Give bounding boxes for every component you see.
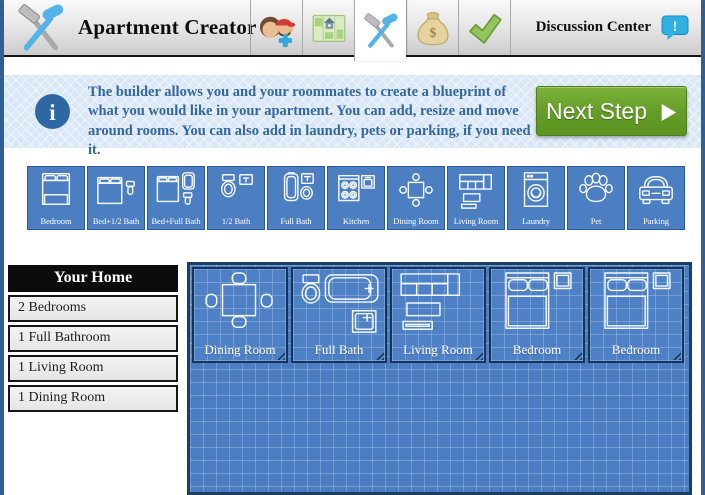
placed-room-label: Bedroom — [491, 342, 583, 358]
header-tab[interactable] — [458, 0, 510, 55]
svg-text:i: i — [49, 100, 56, 125]
roommates-icon — [257, 8, 297, 48]
next-step-button[interactable]: Next Step — [536, 86, 687, 136]
palette-item[interactable]: Bed+Full Bath — [147, 166, 205, 230]
palette-item[interactable]: 1/2 Bath — [207, 166, 265, 230]
palette-item[interactable]: Kitchen — [327, 166, 385, 230]
palette-item-label: Pet — [591, 216, 602, 229]
living-room-icon — [455, 169, 497, 211]
room-dining-icon — [197, 272, 283, 336]
hammer-tools-icon — [361, 11, 401, 51]
room-bedroom-icon — [494, 272, 580, 336]
palette-item-label: Full Bath — [281, 216, 312, 229]
palette-item-label: Bedroom — [41, 216, 72, 229]
header-tab[interactable] — [250, 0, 302, 55]
half-bath-icon — [215, 169, 257, 211]
header-tabs: $ — [250, 0, 511, 55]
palette-item[interactable]: Bed+1/2 Bath — [87, 166, 145, 230]
checkmark-icon — [465, 8, 505, 48]
discussion-center-label: Discussion Center — [536, 19, 651, 36]
home-summary-row: 1 Dining Room — [8, 385, 178, 412]
placed-room-label: Full Bath — [293, 342, 385, 358]
next-step-label: Next Step — [546, 98, 647, 125]
palette-item[interactable]: Bedroom — [27, 166, 85, 230]
placed-room[interactable]: Dining Room — [192, 267, 288, 363]
header-tab[interactable] — [302, 0, 354, 55]
placed-room-label: Bedroom — [590, 342, 682, 358]
palette-item-label: Parking — [643, 216, 669, 229]
kitchen-icon — [335, 169, 377, 211]
palette-item-label: Bed+Full Bath — [151, 216, 200, 229]
laundry-icon — [515, 169, 557, 211]
bed-icon — [35, 169, 77, 211]
palette-item-label: 1/2 Bath — [222, 216, 250, 229]
palette-item-label: Laundry — [522, 216, 550, 229]
palette-item-label: Bed+1/2 Bath — [93, 216, 139, 229]
crossed-hammers-icon — [14, 3, 68, 53]
car-icon — [635, 169, 677, 211]
room-bedroom-icon — [593, 272, 679, 336]
app-title: Apartment Creator — [78, 0, 257, 55]
placed-room[interactable]: Bedroom — [489, 267, 585, 363]
placed-room-label: Dining Room — [194, 342, 286, 358]
home-summary-row: 2 Bedrooms — [8, 295, 178, 322]
svg-text:$: $ — [429, 25, 436, 40]
room-palette: Bedroom Bed+1/2 Bath Bed+Full Bath 1/2 B… — [27, 166, 685, 230]
map-icon — [309, 8, 349, 48]
home-summary-row: 1 Full Bathroom — [8, 325, 178, 352]
home-summary-row: 1 Living Room — [8, 355, 178, 382]
bed-full-bath-icon — [155, 169, 197, 211]
page-frame-right — [701, 0, 705, 495]
dining-room-icon — [395, 169, 437, 211]
palette-item-label: Living Room — [454, 216, 498, 229]
palette-item[interactable]: Pet — [567, 166, 625, 230]
info-banner: i The builder allows you and your roomma… — [4, 75, 701, 148]
blueprint-canvas[interactable]: Dining Room Full Bath Living Room — [187, 262, 692, 495]
placed-room[interactable]: Full Bath — [291, 267, 387, 363]
placed-rooms: Dining Room Full Bath Living Room — [190, 265, 689, 365]
bed-half-bath-icon — [95, 169, 137, 211]
palette-item[interactable]: Full Bath — [267, 166, 325, 230]
palette-item[interactable]: Laundry — [507, 166, 565, 230]
info-icon: i — [34, 93, 71, 130]
banner-text: The builder allows you and your roommate… — [88, 83, 536, 161]
palette-item-label: Dining Room — [393, 216, 438, 229]
palette-item[interactable]: Living Room — [447, 166, 505, 230]
room-fullbath-icon — [296, 272, 382, 336]
apartment-creator-app: Apartment Creator $ — [0, 0, 705, 495]
palette-item-label: Kitchen — [343, 216, 369, 229]
room-living-icon — [395, 272, 481, 336]
home-summary-list: 2 Bedrooms 1 Full Bathroom 1 Living Room… — [8, 295, 178, 412]
play-arrow-icon — [660, 103, 677, 122]
placed-room[interactable]: Living Room — [390, 267, 486, 363]
palette-item[interactable]: Dining Room — [387, 166, 445, 230]
paw-icon — [575, 169, 617, 211]
svg-text:!: ! — [673, 18, 678, 34]
discussion-center-link[interactable]: Discussion Center ! — [536, 0, 689, 55]
app-header: Apartment Creator $ — [4, 0, 701, 57]
home-summary: Your Home 2 Bedrooms 1 Full Bathroom 1 L… — [8, 265, 178, 412]
full-bath-icon — [275, 169, 317, 211]
placed-room[interactable]: Bedroom — [588, 267, 684, 363]
home-summary-title: Your Home — [8, 265, 178, 292]
money-bag-icon: $ — [413, 8, 453, 48]
placed-room-label: Living Room — [392, 342, 484, 358]
header-tab[interactable] — [354, 0, 406, 61]
alert-bubble-icon[interactable]: ! — [661, 15, 689, 41]
palette-item[interactable]: Parking — [627, 166, 685, 230]
header-tab[interactable]: $ — [406, 0, 458, 55]
page-frame-left — [0, 0, 4, 495]
